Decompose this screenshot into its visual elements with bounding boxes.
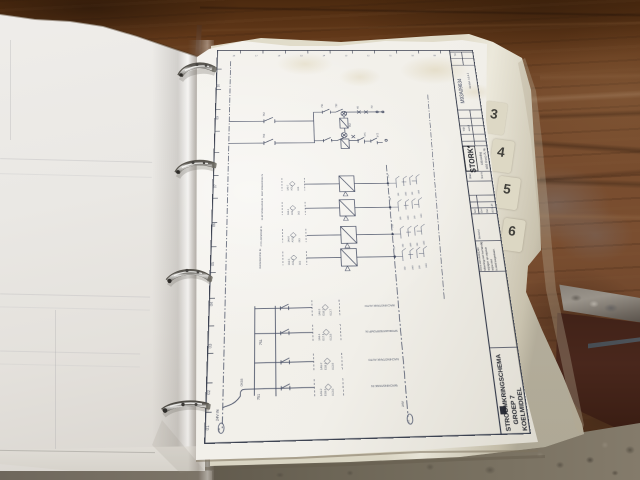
svg-text:013.0: 013.0 xyxy=(332,388,335,396)
svg-text:1665: 1665 xyxy=(423,241,426,246)
svg-text:KLEP KOELMIDDEL IN: KLEP KOELMIDDEL IN xyxy=(262,174,264,196)
svg-text:1A6-1: 1A6-1 xyxy=(287,208,291,215)
svg-text:1A6-1: 1A6-1 xyxy=(317,333,321,341)
svg-text:14: 14 xyxy=(323,55,326,57)
svg-text:04: 04 xyxy=(209,301,214,306)
svg-text:03: 03 xyxy=(207,343,212,348)
svg-text:13: 13 xyxy=(345,55,349,57)
svg-text:M93A09634: M93A09634 xyxy=(457,78,467,103)
svg-text:07: 07 xyxy=(213,184,218,188)
svg-text:043: 043 xyxy=(298,210,301,215)
svg-text:WACHINGTANK IN: WACHINGTANK IN xyxy=(371,383,398,388)
svg-text:013.9: 013.9 xyxy=(332,362,335,370)
svg-text:7S1: 7S1 xyxy=(321,103,325,108)
svg-text:WACHINGTANK AUTO: WACHINGTANK AUTO xyxy=(364,303,395,307)
svg-text:1665: 1665 xyxy=(412,265,415,270)
svg-text:7N2: 7N2 xyxy=(390,198,393,202)
svg-text:18: 18 xyxy=(232,55,235,57)
svg-text:7N1: 7N1 xyxy=(394,246,397,250)
svg-text:24V: 24V xyxy=(401,400,406,406)
svg-text:013.7: 013.7 xyxy=(330,308,333,315)
svg-text:Blad: Blad xyxy=(468,173,472,179)
svg-text:380: 380 xyxy=(412,192,415,195)
svg-text:1A6-2: 1A6-2 xyxy=(319,362,323,370)
svg-text:10: 10 xyxy=(411,55,415,57)
svg-text:CYCLOONPOMP IN: CYCLOONPOMP IN xyxy=(261,225,263,246)
svg-text:02: 02 xyxy=(206,390,212,395)
svg-text:1A6-2: 1A6-2 xyxy=(319,387,323,396)
svg-text:1A6-3: 1A6-3 xyxy=(318,308,322,316)
svg-text:aantal: aantal xyxy=(467,124,471,131)
svg-text:751: 751 xyxy=(256,393,261,400)
svg-text:11: 11 xyxy=(389,55,392,57)
svg-text:Norm: Norm xyxy=(480,172,484,178)
svg-text:A06.1: A06.1 xyxy=(290,184,294,191)
svg-text:7N3: 7N3 xyxy=(392,224,395,228)
svg-text:24V IN: 24V IN xyxy=(214,409,220,421)
svg-text:WACHINGTANK IN: WACHINGTANK IN xyxy=(258,248,262,269)
svg-text:09: 09 xyxy=(215,116,220,120)
svg-text:043: 043 xyxy=(299,260,302,265)
svg-text:1665: 1665 xyxy=(407,215,410,219)
svg-text:H5: H5 xyxy=(356,105,360,109)
svg-text:Wijz.: Wijz. xyxy=(462,126,466,131)
svg-text:1A6-7: 1A6-7 xyxy=(286,184,290,191)
svg-text:380: 380 xyxy=(404,267,407,271)
svg-text:17: 17 xyxy=(255,55,258,57)
svg-text:1665: 1665 xyxy=(405,192,408,196)
svg-text:1665: 1665 xyxy=(418,190,421,194)
svg-text:06: 06 xyxy=(211,223,216,227)
svg-text:OK1B: OK1B xyxy=(241,378,244,387)
svg-text:E18.7: E18.7 xyxy=(323,308,326,316)
svg-text:Dat.: Dat. xyxy=(485,208,489,213)
svg-text:A06.2: A06.2 xyxy=(291,258,295,265)
svg-text:380: 380 xyxy=(417,243,420,246)
svg-text:E18.1: E18.1 xyxy=(325,362,328,370)
svg-text:12: 12 xyxy=(367,55,371,57)
svg-text:6Y1: 6Y1 xyxy=(363,132,367,137)
svg-text:1665: 1665 xyxy=(410,243,413,248)
svg-text:751: 751 xyxy=(258,339,263,346)
svg-text:E17.5: E17.5 xyxy=(323,333,326,341)
svg-text:01: 01 xyxy=(205,425,211,431)
svg-text:05: 05 xyxy=(210,262,215,266)
svg-text:Aanslut. b.b.4.3: Aanslut. b.b.4.3 xyxy=(467,72,473,88)
svg-text:1665: 1665 xyxy=(425,263,428,268)
svg-text:16: 16 xyxy=(278,55,281,57)
svg-text:SPOELWATERPOMP IN: SPOELWATERPOMP IN xyxy=(365,329,398,334)
svg-text:1A6-5: 1A6-5 xyxy=(287,258,291,265)
svg-text:Get.: Get. xyxy=(473,208,477,213)
svg-text:6Y2: 6Y2 xyxy=(376,132,380,137)
svg-text:7S2: 7S2 xyxy=(335,103,339,108)
svg-text:7K2: 7K2 xyxy=(348,123,352,128)
svg-text:1665: 1665 xyxy=(420,214,423,218)
svg-text:380: 380 xyxy=(398,193,401,196)
svg-text:013.8: 013.8 xyxy=(330,333,333,341)
svg-text:043: 043 xyxy=(298,186,300,191)
svg-text:7K3: 7K3 xyxy=(263,133,266,138)
svg-text:KLEP SPOELHOEK IN: KLEP SPOELHOEK IN xyxy=(262,197,264,220)
svg-text:Bestand: Bestand xyxy=(477,229,482,239)
svg-text:380: 380 xyxy=(402,244,405,247)
svg-text:1A6-8: 1A6-8 xyxy=(287,235,291,242)
svg-text:A06.3: A06.3 xyxy=(291,235,295,242)
svg-text:043: 043 xyxy=(299,237,302,242)
svg-text:7K2: 7K2 xyxy=(263,112,266,117)
svg-text:380: 380 xyxy=(419,265,422,269)
svg-text:15: 15 xyxy=(300,55,303,57)
svg-text:380: 380 xyxy=(400,217,403,220)
svg-text:NACHINGTANK AUTO: NACHINGTANK AUTO xyxy=(368,357,399,362)
svg-text:P2: P2 xyxy=(370,105,374,108)
svg-text:A06.4: A06.4 xyxy=(290,208,294,215)
svg-text:PJ5: PJ5 xyxy=(219,428,222,432)
svg-text:Gec.: Gec. xyxy=(481,207,484,212)
svg-text:GS: GS xyxy=(408,418,411,423)
svg-text:09: 09 xyxy=(433,55,437,57)
svg-text:7N4: 7N4 xyxy=(388,174,391,177)
svg-text:380: 380 xyxy=(414,216,417,219)
svg-text:TO: TO xyxy=(454,53,458,56)
svg-text:E18.0: E18.0 xyxy=(325,387,328,396)
svg-text:10: 10 xyxy=(216,84,221,87)
svg-text:STROOMKRINGSCHEMA: STROOMKRINGSCHEMA xyxy=(495,353,514,431)
